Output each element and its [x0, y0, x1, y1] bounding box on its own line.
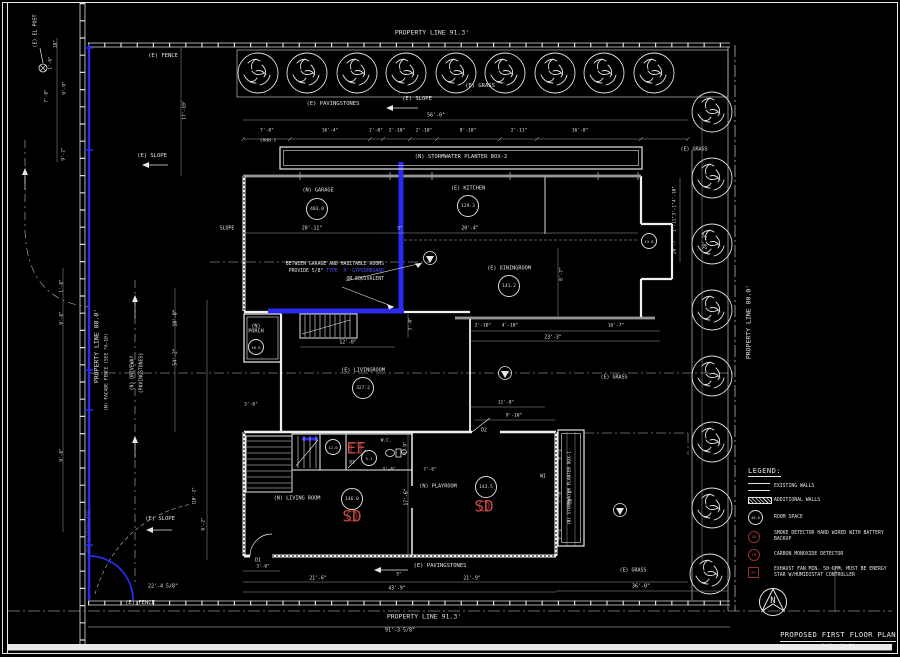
sliding-gate-label: (N) SLIDINGGATE	[87, 510, 92, 553]
dim-label: 7'-8"	[559, 489, 564, 502]
kitchen-label: (E) KITCHEN	[451, 186, 485, 191]
dim-label: 9'-8"	[61, 311, 66, 324]
dim-label: 17'-10"	[184, 100, 189, 119]
dim-label: 3'-0"	[256, 566, 269, 571]
dim-label: 54'-2"	[173, 348, 178, 365]
dim-label: 22'-4 5/8"	[148, 584, 178, 589]
dim-label: 36'-0"	[632, 584, 650, 589]
dim-label: 2'-10"	[416, 130, 433, 135]
dim-label: (Add.)	[260, 140, 277, 145]
dim-label: 9'-10"	[506, 415, 523, 420]
dim-label: 7'-8"	[260, 130, 274, 135]
dim-label: 9'-2"	[63, 147, 68, 160]
legend: LEGEND: EXISTING WALLS ADDITIONAL WALLS …	[748, 458, 898, 585]
legend-item-carbon-monoxide: CM CARBON MONOXIDE DETECTOR	[748, 549, 898, 561]
note-line-3: OR EQUIVALENT	[252, 276, 384, 283]
porch-area-tag: 48.6	[248, 339, 264, 355]
dim-label: 91'-3 5/8"	[385, 628, 415, 633]
grass-upper-right-label: (E) GRASS	[680, 147, 707, 152]
grass-top-label: (E) GRASS	[465, 84, 495, 90]
dim-label: 1'-11"	[674, 216, 679, 232]
dim-label: 20'-7"	[674, 238, 679, 254]
dim-label: 2'-10"	[389, 130, 406, 135]
dim-label: 20'-11"	[302, 226, 322, 231]
dim-label: 9'-8"	[61, 448, 66, 461]
room-space-icon: 46.0	[748, 510, 763, 525]
closet-area-tag: 11.0	[325, 439, 341, 455]
dim-label: 11'-0"	[498, 402, 515, 407]
title-block: PROPOSED FIRST FLOOR PLAN 1/4" = 1'-0"	[778, 622, 898, 649]
legend-heading: LEGEND:	[748, 467, 781, 477]
drawing-title: PROPOSED FIRST FLOOR PLAN	[780, 630, 896, 642]
wc-label: W.C.	[381, 440, 392, 445]
driveway-label-1: (N) DRIVEWAY	[130, 356, 135, 391]
dim-label: 5"	[397, 228, 402, 233]
dim-label: 2'-0"	[369, 130, 383, 135]
dim-label: 3'-1"	[674, 202, 679, 215]
dim-label: 17'-6"	[404, 488, 409, 505]
legend-item-exhaust-fan: EF EXHAUST FAN MIN. 50 CFM, MUST BE ENER…	[748, 567, 898, 579]
exhaust-fan-icon: EF	[351, 443, 362, 454]
el-post-label: (E) EL POST	[33, 14, 38, 47]
dim-label: 16'-0"	[572, 130, 589, 135]
livingroom-existing-label: (E) LIVINGROOM	[341, 368, 385, 373]
grass-mid-right-label: (E) GRASS	[600, 375, 627, 380]
dim-label: 12'-0"	[339, 340, 356, 345]
kitchen-area-tag: 129.3	[457, 195, 479, 217]
diningroom-label: (E) DININGROOM	[487, 266, 531, 271]
driveway-label-2: (PAVINGSTONES)	[139, 353, 144, 393]
dim-label: 18'-8"	[173, 309, 178, 326]
door-tag-d2: D2	[481, 428, 487, 433]
note-line-2: PROVIDE 5/8" TYPE 'X' GYPSUMBOARD	[252, 268, 384, 275]
livingroom-new-label: (N) LIVING ROOM	[274, 496, 321, 501]
legend-item-additional-walls: ADDITIONAL WALLS	[748, 497, 898, 504]
drawing-scale: 1/4" = 1'-0"	[778, 644, 898, 649]
dim-label: 7'-6"	[423, 469, 436, 474]
note-highlight: TYPE 'X' GYPSUMBOARD	[326, 269, 384, 274]
dim-label: 10'-2"	[194, 487, 199, 503]
existing-walls-icon	[748, 483, 770, 491]
carbon-monoxide-icon: CM	[748, 549, 760, 561]
playroom-label: (N) PLAYROOM	[419, 484, 456, 489]
annotation-overlay: BETWEEN GARAGE AND HABITABLE ROOMS PROVI…	[0, 0, 900, 657]
legend-item-existing-walls: EXISTING WALLS	[748, 483, 898, 491]
floor-plan-sheet: BETWEEN GARAGE AND HABITABLE ROOMS PROVI…	[0, 0, 900, 657]
north-label: N	[770, 596, 775, 606]
dim-label: 28'-3"	[703, 232, 708, 249]
livingroom-existing-area-tag: 327.2	[352, 377, 374, 399]
porch-label: (N) PORCH	[243, 325, 269, 336]
facade-fence-label: (N) FACADE FENCE (SEE *A-10)	[106, 333, 111, 410]
property-line-right-label: PROPERTY LINE 80.0'	[746, 285, 753, 359]
window-tag-w1: W1	[540, 474, 546, 479]
dim-label: 21'-6"	[309, 576, 326, 581]
legend-item-room-space: 46.0 ROOM SPACE	[748, 510, 898, 525]
dim-label: 2'-10"	[475, 325, 492, 330]
note-line-1: BETWEEN GARAGE AND HABITABLE ROOMS	[252, 261, 384, 268]
dim-label: 3'-0"	[410, 317, 415, 330]
garage-fire-note: BETWEEN GARAGE AND HABITABLE ROOMS PROVI…	[252, 261, 384, 283]
dim-label: 7'-8"	[46, 89, 51, 102]
dim-label: 8'-2"	[203, 517, 208, 530]
dim-label: 43'-9"	[388, 586, 405, 591]
property-line-bottom-label: PROPERTY LINE 91.3'	[387, 614, 461, 621]
dim-label: 5"	[396, 574, 401, 579]
dim-label: 4'-10"	[674, 186, 679, 202]
exhaust-fan-icon: EF	[748, 567, 759, 578]
slope-garage-label: SLOPE	[220, 226, 234, 231]
dim-label: 16'-4"	[322, 130, 339, 135]
dim-label: 4'-9"	[405, 441, 410, 454]
dim-label: 18"	[55, 40, 60, 48]
garage-label: (N) GARAGE	[302, 188, 333, 193]
dim-label: 3'-6"	[244, 404, 258, 409]
smoke-detector-icon: SD	[479, 501, 490, 512]
dim-label: 3'-6"	[382, 469, 395, 474]
dim-label: 6'-2"	[559, 526, 564, 539]
dim-label: 1'-6"	[50, 56, 55, 69]
grass-lower-right-label: (E) GRASS	[619, 568, 646, 573]
slope-top-label: (E) SLOPE	[402, 97, 432, 103]
dim-label: 56'-0"	[427, 113, 445, 118]
dim-label: 21'-9"	[463, 576, 480, 581]
additional-walls-icon	[748, 497, 772, 504]
smoke-detector-icon: SD	[748, 531, 760, 543]
dim-label: 20'-4"	[461, 226, 478, 231]
pavingstones-bottom-label: (E) PAVINGSTONES	[414, 564, 467, 570]
side-nook-area-tag: 13.8	[641, 233, 657, 249]
property-line-left-label: PROPERTY LINE 80.0'	[94, 309, 101, 383]
dim-label: 9'-9"	[64, 81, 69, 94]
dim-label: 4'-10"	[502, 325, 519, 330]
playroom-area-tag: 143.5	[475, 476, 497, 498]
planter-box-2-label: (N) STORMWATER PLANTER BOX-2	[415, 155, 508, 161]
dim-label: 8'-2"	[559, 446, 564, 459]
fence-bottom-label: (E) FENCE	[125, 601, 155, 607]
garage-area-tag: 403.0	[306, 198, 328, 220]
slope-upper-left-label: (E) SLOPE	[137, 154, 167, 160]
pavingstones-top-label: (E) PAVINGSTONES	[307, 102, 360, 108]
dim-label: 8'-7"	[561, 267, 566, 281]
smoke-detector-icon: SD	[347, 511, 358, 522]
diningroom-area-tag: 141.2	[498, 275, 520, 297]
dim-label: 2'-11"	[511, 130, 528, 135]
dim-label: 23'-3"	[544, 335, 561, 340]
legend-item-smoke-detector: SD SMOKE DETECTOR HARD WIRED WITH BATTER…	[748, 531, 898, 543]
dim-label: 12'-2"	[570, 488, 575, 504]
dim-label: 1'-8"	[61, 279, 66, 292]
fence-top-label: (E) FENCE	[148, 54, 178, 60]
dim-label: 8'-10"	[460, 130, 477, 135]
door-tag-d1: D1	[255, 558, 261, 563]
dim-label: 16'-7"	[608, 325, 625, 330]
slope-lower-left-label: (E) SLOPE	[145, 517, 175, 523]
door-tag-d3: D3	[349, 462, 354, 467]
property-line-top-label: PROPERTY LINE 91.3'	[395, 30, 469, 37]
